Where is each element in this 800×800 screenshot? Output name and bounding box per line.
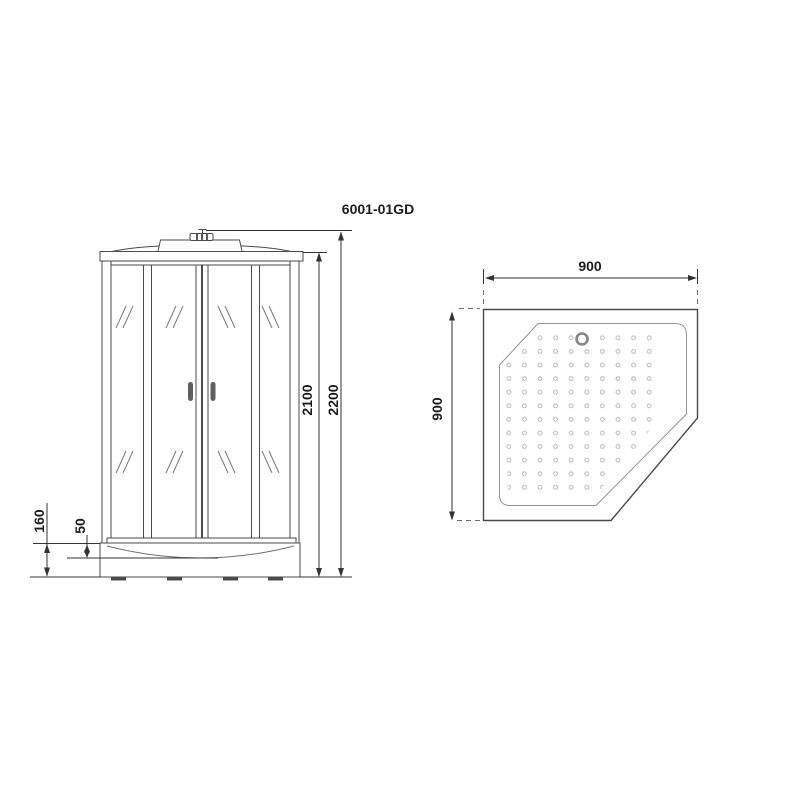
door-stile-right: [203, 265, 209, 543]
bottom-rail: [107, 538, 296, 543]
divider-post-left: [144, 265, 152, 543]
technical-drawing-canvas: 6001-01GD 2100 2200 160 50 900 900: [0, 0, 800, 800]
roof-vent-base: [158, 240, 242, 251]
roof-vent-stem: [199, 230, 207, 234]
tray-feet: [111, 578, 283, 581]
frame-members: [102, 261, 299, 543]
front-view: [100, 230, 303, 581]
left-frame-post: [102, 261, 111, 543]
roof-cornice: [100, 252, 303, 262]
dim-label-900-depth: 900: [429, 387, 445, 431]
tray-front: [100, 543, 300, 577]
door-stile-left: [196, 265, 202, 543]
dim-label-50: 50: [72, 504, 88, 548]
right-door-handle: [211, 382, 216, 401]
model-number-title: 6001-01GD: [333, 201, 423, 217]
right-frame-post: [290, 261, 299, 543]
dim-label-160: 160: [31, 499, 47, 543]
divider-post-right: [252, 265, 260, 543]
left-door-handle: [188, 382, 193, 401]
dim-label-2100: 2100: [299, 378, 315, 422]
dim-label-900-width: 900: [568, 258, 612, 274]
dim-label-2200: 2200: [325, 378, 341, 422]
drawing-linework: [0, 0, 800, 800]
